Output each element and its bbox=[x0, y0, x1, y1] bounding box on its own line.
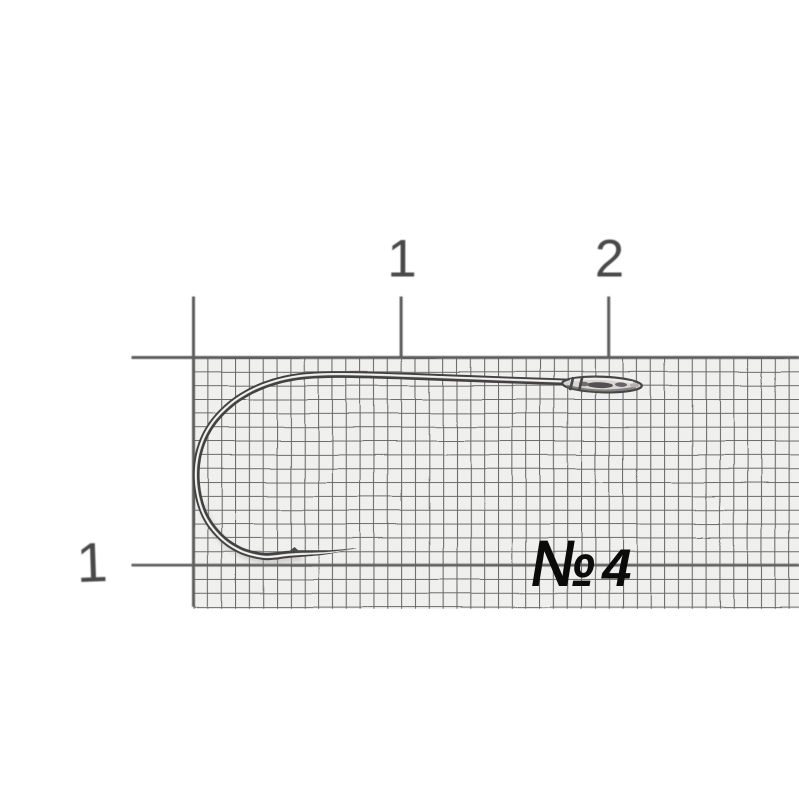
svg-text:№: № bbox=[531, 526, 595, 600]
svg-text:2: 2 bbox=[595, 230, 624, 289]
svg-text:1: 1 bbox=[387, 230, 416, 289]
svg-text:1: 1 bbox=[75, 530, 108, 594]
svg-text:4: 4 bbox=[601, 539, 631, 598]
